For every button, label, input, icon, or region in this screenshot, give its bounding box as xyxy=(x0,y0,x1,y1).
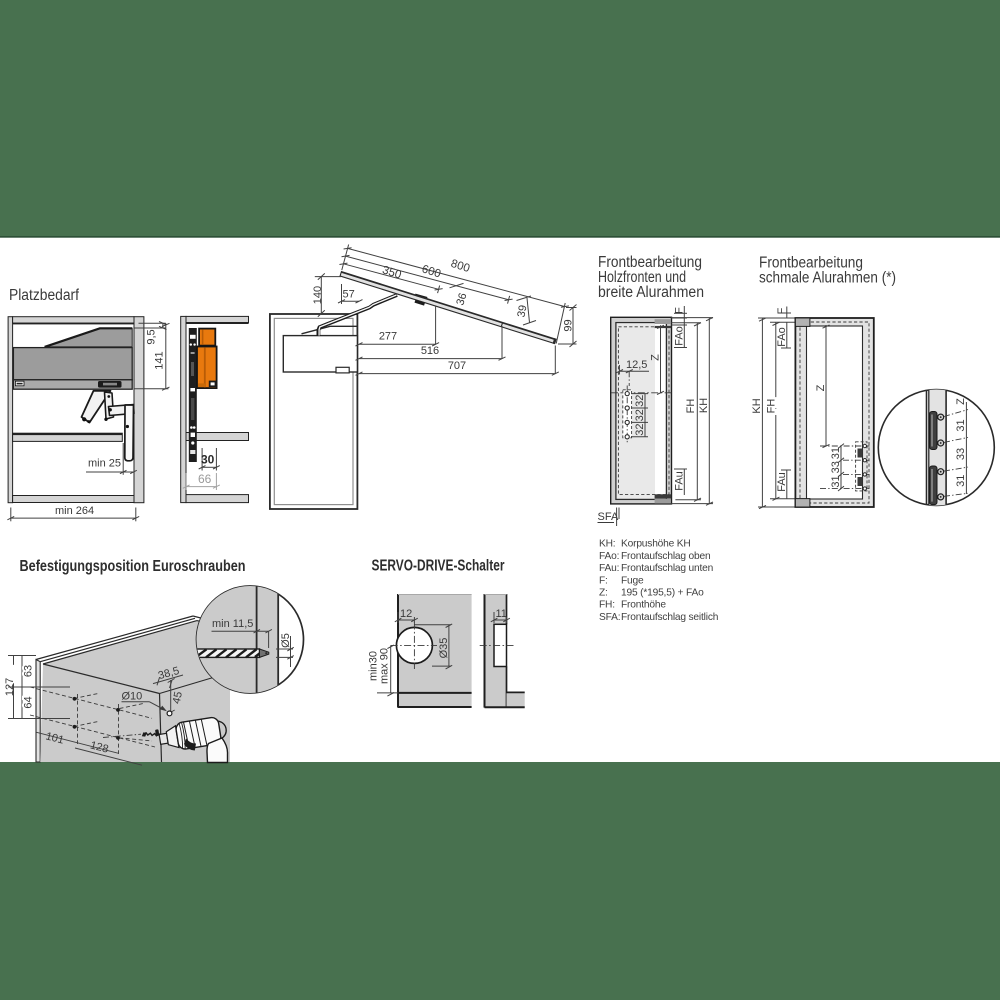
svg-text:KH: KH xyxy=(698,398,710,413)
svg-text:KH: KH xyxy=(751,398,763,413)
svg-text:FAo: FAo xyxy=(776,327,788,347)
svg-text:64: 64 xyxy=(23,696,35,708)
svg-text:schmale Alurahmen (*): schmale Alurahmen (*) xyxy=(759,270,896,287)
svg-text:33: 33 xyxy=(955,448,967,460)
svg-text:F:: F: xyxy=(599,575,608,586)
svg-text:SFA:: SFA: xyxy=(599,612,620,623)
svg-text:FH: FH xyxy=(765,399,777,414)
svg-text:Frontaufschlag unten: Frontaufschlag unten xyxy=(621,563,713,574)
svg-text:min 25: min 25 xyxy=(88,458,121,470)
svg-text:12: 12 xyxy=(400,608,412,620)
svg-text:FAu:: FAu: xyxy=(599,563,619,574)
svg-text:57: 57 xyxy=(343,289,355,301)
svg-text:32: 32 xyxy=(634,423,646,435)
svg-text:516: 516 xyxy=(421,345,439,357)
svg-text:FAu: FAu xyxy=(776,472,788,492)
svg-text:breite Alurahmen: breite Alurahmen xyxy=(598,284,704,301)
svg-text:SERVO-DRIVE-Schalter: SERVO-DRIVE-Schalter xyxy=(372,558,505,575)
svg-text:140: 140 xyxy=(312,286,324,304)
svg-text:33: 33 xyxy=(830,461,842,473)
svg-text:Platzbedarf: Platzbedarf xyxy=(9,287,80,304)
svg-text:31: 31 xyxy=(955,475,967,487)
svg-text:32: 32 xyxy=(634,409,646,421)
svg-text:Korpushöhe KH: Korpushöhe KH xyxy=(621,539,691,550)
svg-text:min 264: min 264 xyxy=(55,505,94,517)
svg-text:30: 30 xyxy=(201,453,215,467)
svg-text:KH:: KH: xyxy=(599,539,615,550)
svg-text:63: 63 xyxy=(23,665,35,677)
svg-text:Frontaufschlag seitlich: Frontaufschlag seitlich xyxy=(621,612,718,623)
svg-text:Frontaufschlag oben: Frontaufschlag oben xyxy=(621,551,710,562)
svg-text:707: 707 xyxy=(448,360,466,372)
svg-text:195 (*195,5) + FAo: 195 (*195,5) + FAo xyxy=(621,588,704,599)
svg-text:Z: Z xyxy=(955,398,967,405)
svg-text:31: 31 xyxy=(830,475,842,487)
svg-text:277: 277 xyxy=(379,331,397,343)
svg-text:Fronthöhe: Fronthöhe xyxy=(621,600,666,611)
svg-text:F: F xyxy=(776,307,788,314)
svg-text:Z:: Z: xyxy=(599,588,608,599)
svg-text:FAo:: FAo: xyxy=(599,551,619,562)
svg-text:99: 99 xyxy=(563,319,575,331)
svg-text:39: 39 xyxy=(516,304,530,318)
svg-text:Z: Z xyxy=(815,384,827,391)
svg-text:Befestigungsposition Euroschra: Befestigungsposition Euroschrauben xyxy=(20,558,246,575)
svg-text:31: 31 xyxy=(830,447,842,459)
svg-text:66: 66 xyxy=(198,472,212,486)
svg-text:Z: Z xyxy=(650,354,662,361)
svg-text:Ø5: Ø5 xyxy=(280,633,292,648)
svg-text:141: 141 xyxy=(154,351,166,369)
svg-text:SFA: SFA xyxy=(598,511,619,523)
svg-text:45: 45 xyxy=(171,690,185,704)
svg-text:127: 127 xyxy=(4,678,16,696)
svg-text:11: 11 xyxy=(496,608,507,620)
svg-text:F: F xyxy=(674,307,686,314)
svg-text:max 90: max 90 xyxy=(379,648,391,684)
svg-text:Fuge: Fuge xyxy=(621,575,644,586)
svg-text:min 11,5: min 11,5 xyxy=(212,618,253,630)
svg-text:Ø10: Ø10 xyxy=(122,690,143,702)
svg-text:FAu: FAu xyxy=(674,471,686,491)
svg-text:12,5: 12,5 xyxy=(626,359,647,371)
svg-text:FH: FH xyxy=(685,399,697,414)
svg-text:Ø35: Ø35 xyxy=(438,638,450,659)
svg-text:31: 31 xyxy=(955,419,967,431)
svg-text:FAo: FAo xyxy=(674,326,686,346)
svg-text:32: 32 xyxy=(634,395,646,407)
svg-text:9,5: 9,5 xyxy=(146,329,158,344)
svg-text:FH:: FH: xyxy=(599,600,615,611)
